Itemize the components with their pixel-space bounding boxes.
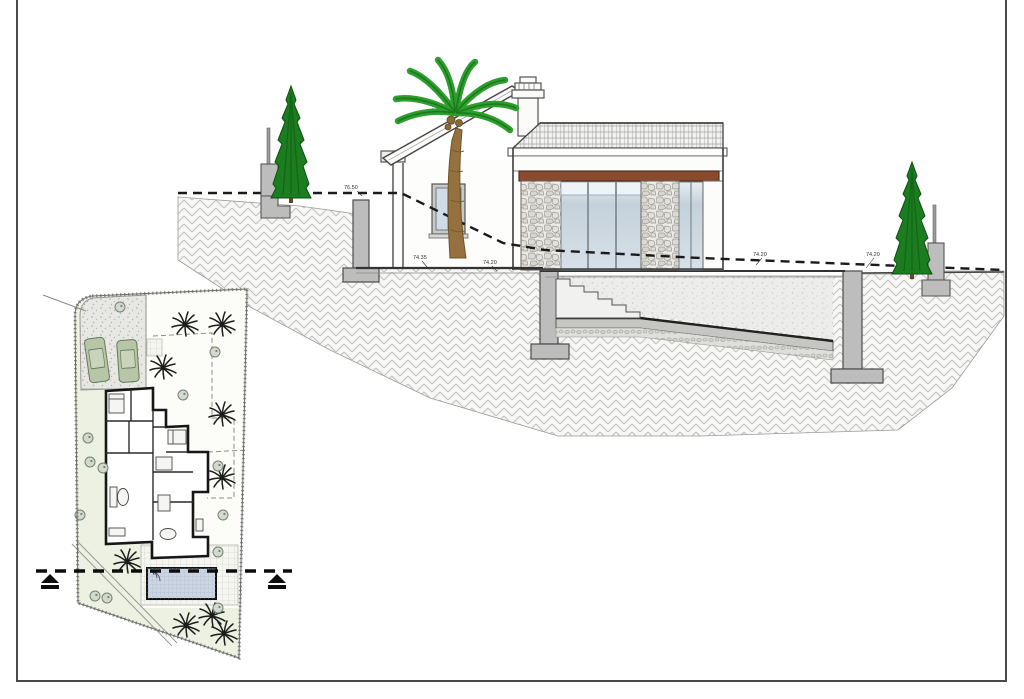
drawing-page: 76.50 74.35 74.20 74.20 74.20: [0, 0, 1024, 699]
stone-pier-right: [641, 181, 679, 270]
porch-beam: [519, 171, 719, 181]
cypress-left: [271, 86, 311, 203]
architectural-drawing: 76.50 74.35 74.20 74.20 74.20: [0, 0, 1024, 699]
level-label: 74.20: [483, 260, 497, 266]
stone-pier-left: [521, 181, 561, 270]
level-label: 74.35: [413, 255, 427, 261]
main-building: [508, 123, 727, 270]
section-arrow-left: [41, 574, 59, 589]
level-label: 74.20: [866, 252, 880, 258]
elevation-section: 76.50 74.35 74.20 74.20 74.20: [178, 60, 1004, 436]
level-label: 74.20: [753, 252, 767, 258]
tiled-roof: [513, 123, 723, 148]
level-label: 76.50: [344, 185, 358, 191]
sliding-glass-door: [561, 182, 643, 270]
section-arrow-right: [268, 574, 286, 589]
cypress-right: [892, 162, 932, 279]
site-plan: [36, 289, 292, 658]
car: [117, 339, 140, 382]
entry-walkway: [147, 339, 162, 356]
